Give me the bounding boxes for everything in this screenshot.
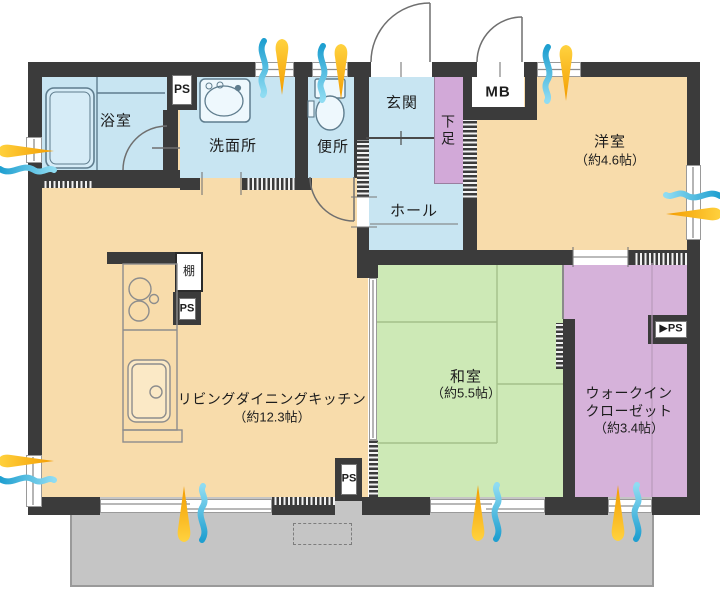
sliding-door-track <box>369 278 377 440</box>
sliding-door-hatch <box>633 253 687 265</box>
wall-corner-stub <box>357 250 378 278</box>
wall-washroom-bottom <box>180 178 200 190</box>
wall-bottom <box>545 497 608 515</box>
room-toilet <box>308 77 354 178</box>
label-wic-line1: ウォークイン <box>586 385 673 401</box>
label-hall: ホール <box>390 202 438 219</box>
sliding-door-hatch <box>357 140 369 197</box>
label-ps-right: ▶PS <box>659 323 682 336</box>
sliding-door-hatch <box>272 497 335 505</box>
label-wic-area: （約3.4帖） <box>594 422 664 437</box>
wall-right <box>687 62 700 165</box>
wall-bottom <box>652 497 700 515</box>
window-top-washroom <box>255 62 294 77</box>
wall-washroom-toilet <box>295 62 308 190</box>
label-japanese-room-area: （約5.5帖） <box>431 387 501 402</box>
label-ldk: リビングダイニングキッチン <box>178 391 367 407</box>
sliding-door-hatch <box>556 323 563 369</box>
opening-western-wic <box>573 250 628 265</box>
window-bottom-wic <box>608 499 652 513</box>
label-ps-bottom: PS <box>342 473 357 486</box>
window-right-western <box>686 165 701 240</box>
room-washroom <box>180 77 295 178</box>
mb-wall <box>525 77 537 120</box>
label-shelf: 棚 <box>183 265 195 279</box>
label-bathroom: 浴室 <box>100 112 132 129</box>
window-left-ldk <box>26 455 42 507</box>
wall-toilet-bottom <box>295 178 312 190</box>
label-western-room-area: （約4.6帖） <box>575 154 645 169</box>
window-left-bath <box>26 137 42 163</box>
balcony-door-ldk <box>100 499 272 513</box>
sliding-door-hatch <box>245 178 295 190</box>
floorplan-canvas: 浴室 洗面所 便所 玄関 下足 ホール 洋室 （約4.6帖） リビングダイニング… <box>0 0 720 591</box>
label-ps-kitchen: PS <box>180 303 195 316</box>
balcony-dashed-outline <box>293 523 352 545</box>
label-western-room: 洋室 <box>594 133 626 150</box>
wall-bath-partition <box>163 110 178 173</box>
wall-top <box>28 62 255 77</box>
balcony-door-japanese <box>430 499 545 513</box>
label-toilet: 便所 <box>317 138 349 155</box>
partition-line <box>562 263 564 319</box>
wall-left <box>28 163 42 455</box>
sliding-door-hatch <box>369 440 378 497</box>
wall-top <box>581 62 700 77</box>
opening-ldk-hall <box>357 197 369 227</box>
label-wic-line2: クローゼット <box>586 403 673 419</box>
label-shoe-box: 下足 <box>440 114 456 148</box>
wall-japanese-wic <box>563 319 575 497</box>
entrance-door-opening <box>371 62 432 77</box>
wall-hall-east <box>463 200 477 253</box>
room-walk-in-closet <box>563 263 687 497</box>
window-top-toilet <box>312 62 348 77</box>
sliding-door-hatch <box>463 120 477 200</box>
label-washroom: 洗面所 <box>209 137 257 154</box>
wall-right <box>687 240 700 515</box>
wall-top <box>524 62 537 77</box>
label-entrance: 玄関 <box>386 94 418 111</box>
mb-door-opening <box>477 62 524 77</box>
sliding-door-hatch <box>42 181 92 188</box>
wall-bottom <box>362 497 430 515</box>
wall-kitchen-stub <box>107 252 175 264</box>
label-japanese-room: 和室 <box>450 368 482 385</box>
label-ldk-area: （約12.3帖） <box>233 411 310 426</box>
label-ps-top-left: PS <box>174 83 190 97</box>
wall-left <box>28 62 42 137</box>
label-mb: MB <box>485 83 510 100</box>
window-top-western <box>537 62 581 77</box>
